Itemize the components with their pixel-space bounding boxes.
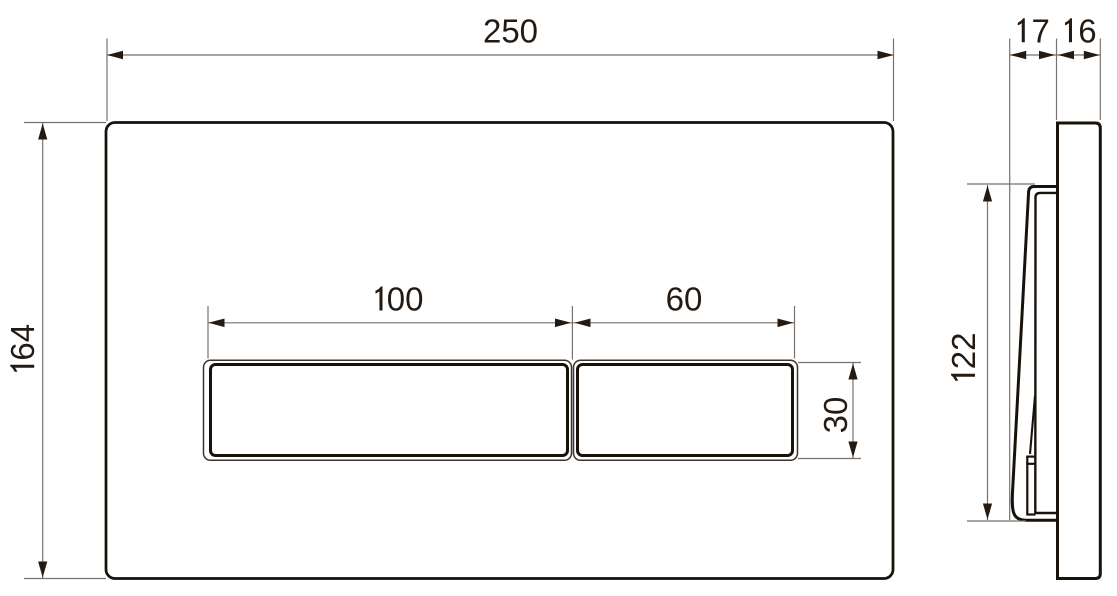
svg-text:6: 6: [1078, 12, 1096, 49]
svg-text:64: 64: [4, 324, 41, 361]
svg-text:60: 60: [666, 281, 703, 318]
svg-text:00: 00: [387, 281, 424, 318]
svg-text:30: 30: [817, 397, 854, 434]
svg-text:22: 22: [945, 332, 982, 369]
svg-text:7: 7: [1032, 12, 1050, 49]
svg-text:250: 250: [483, 13, 538, 50]
